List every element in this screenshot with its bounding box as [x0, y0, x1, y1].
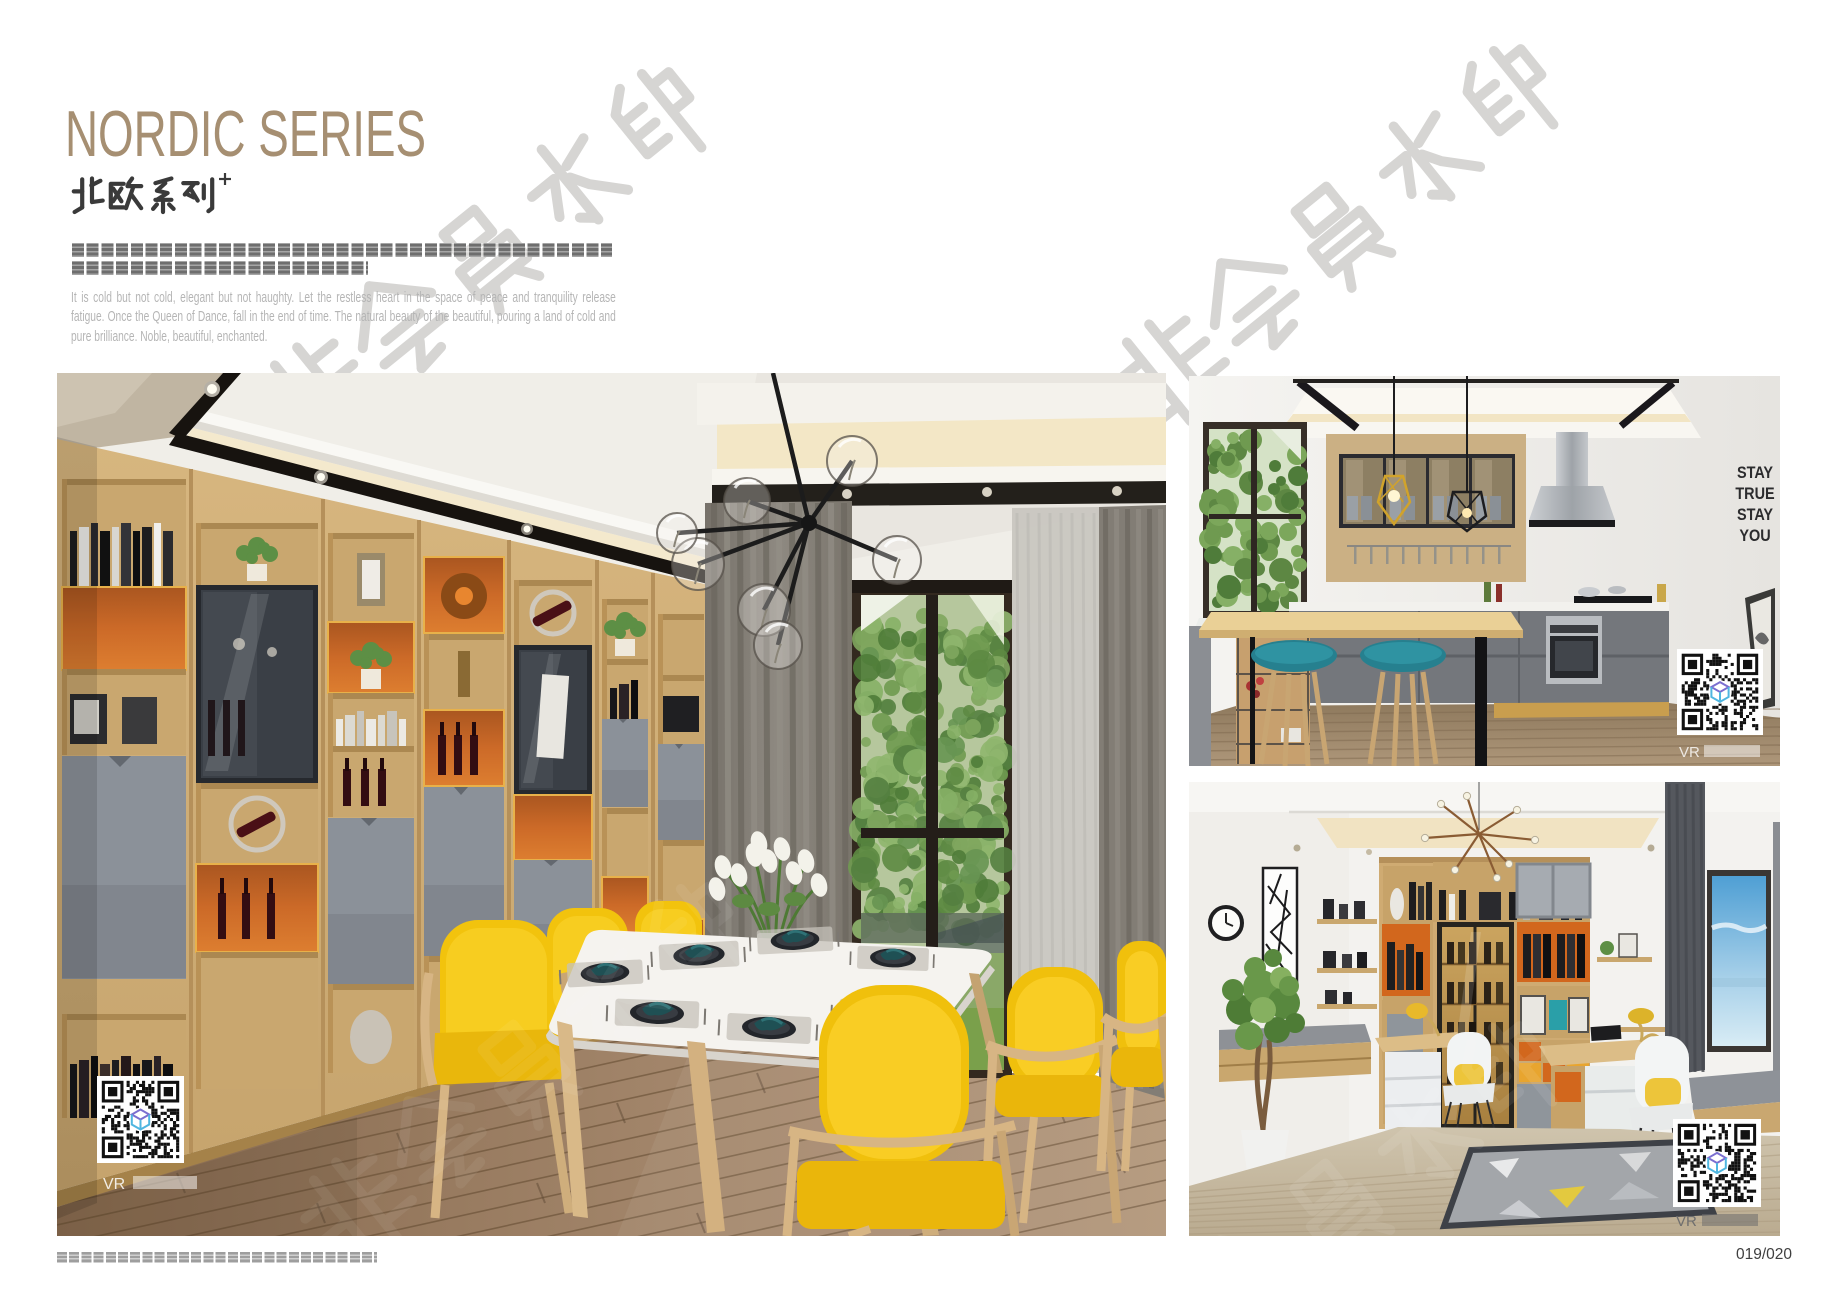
svg-text:STAY: STAY: [1737, 506, 1774, 524]
svg-text:STAY: STAY: [1737, 464, 1774, 482]
svg-text:VR: VR: [1679, 744, 1700, 761]
svg-text:YOU: YOU: [1739, 527, 1770, 545]
svg-text:TRUE: TRUE: [1735, 485, 1774, 503]
svg-text:VR: VR: [1676, 1213, 1697, 1230]
svg-text:VR: VR: [103, 1176, 125, 1193]
